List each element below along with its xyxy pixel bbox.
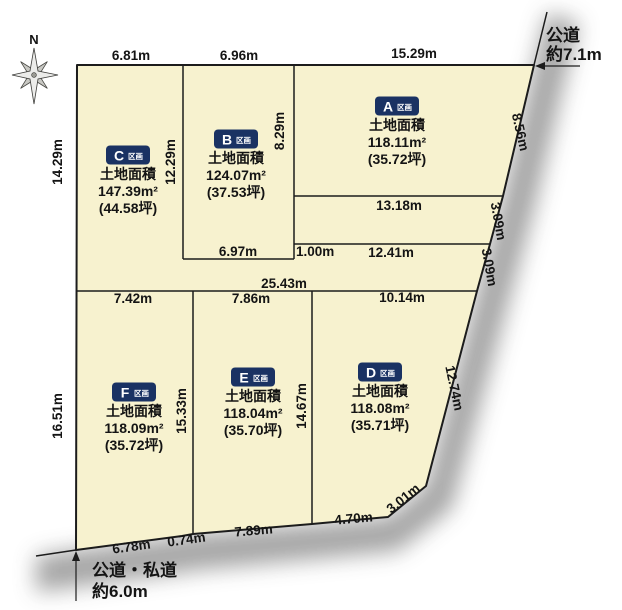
dim-e-top: 7.86m bbox=[232, 291, 270, 306]
road-top-label-2: 約7.1m bbox=[546, 44, 602, 64]
road-bottom-label-2: 約6.0m bbox=[92, 581, 148, 601]
plot-a-badge-sub: 区画 bbox=[397, 103, 412, 112]
plot-e-badge-sub: 区画 bbox=[253, 374, 268, 383]
plot-e-area-m2: 118.04m² bbox=[223, 405, 282, 421]
plot-b-area-tsubo: (37.53坪) bbox=[207, 184, 265, 200]
road-top-label-1: 公道 bbox=[546, 25, 580, 45]
plot-d-badge-sub: 区画 bbox=[380, 369, 395, 378]
site-plan-page: N 公道 約7.1m 公道・私道 約6.0m 6.81m 6.96m 15.29… bbox=[0, 0, 622, 610]
plot-b-area-m2: 124.07m² bbox=[206, 167, 266, 183]
plot-b: B 区画 土地面積 124.07m² (37.53坪) bbox=[206, 130, 266, 201]
plot-d-area-title: 土地面積 bbox=[352, 383, 409, 399]
parcel-outline bbox=[76, 65, 534, 550]
dim-left-upper: 14.29m bbox=[50, 139, 65, 185]
dim-b-bottom: 6.97m bbox=[219, 244, 257, 259]
dim-a-bottom: 13.18m bbox=[376, 198, 422, 213]
plot-f-badge-letter: F bbox=[121, 385, 130, 401]
plot-c-badge-sub: 区画 bbox=[128, 152, 143, 161]
plot-f: F 区画 土地面積 118.09m² (35.72坪) bbox=[104, 383, 163, 454]
plot-b-badge-letter: B bbox=[222, 132, 232, 148]
dim-step: 1.00m bbox=[296, 244, 334, 259]
plot-e-area-tsubo: (35.70坪) bbox=[224, 422, 282, 438]
site-plan-svg: N 公道 約7.1m 公道・私道 約6.0m 6.81m 6.96m 15.29… bbox=[0, 0, 622, 610]
plot-e-badge-letter: E bbox=[239, 370, 248, 386]
dim-top-b: 6.96m bbox=[220, 48, 258, 63]
plot-c-area-tsubo: (44.58坪) bbox=[99, 200, 157, 216]
plot-f-area-title: 土地面積 bbox=[106, 403, 163, 419]
compass: N bbox=[12, 32, 58, 104]
plot-d: D 区画 土地面積 118.08m² (35.71坪) bbox=[350, 363, 409, 434]
dim-mid-total: 25.43m bbox=[261, 276, 307, 291]
dim-top-c: 6.81m bbox=[112, 48, 150, 63]
dim-d-top: 10.14m bbox=[379, 290, 425, 305]
plot-f-area-m2: 118.09m² bbox=[104, 420, 163, 436]
plot-c-area-title: 土地面積 bbox=[100, 166, 157, 182]
north-label: N bbox=[29, 32, 38, 47]
plot-e-area-title: 土地面積 bbox=[225, 388, 282, 404]
plot-d-badge-letter: D bbox=[366, 365, 376, 381]
dim-divider-fe: 15.33m bbox=[174, 388, 189, 434]
plot-f-badge-sub: 区画 bbox=[134, 389, 149, 398]
dim-left-lower: 16.51m bbox=[50, 393, 65, 439]
dim-f-top: 7.42m bbox=[114, 291, 152, 306]
plot-d-area-m2: 118.08m² bbox=[350, 400, 409, 416]
plot-a-area-title: 土地面積 bbox=[369, 117, 426, 133]
plot-e: E 区画 土地面積 118.04m² (35.70坪) bbox=[223, 368, 282, 439]
plot-a-area-m2: 118.11m² bbox=[368, 134, 427, 150]
plot-f-area-tsubo: (35.72坪) bbox=[105, 437, 163, 453]
dim-1241: 12.41m bbox=[368, 245, 414, 260]
plot-a-area-tsubo: (35.72坪) bbox=[368, 151, 426, 167]
plot-b-area-title: 土地面積 bbox=[208, 150, 265, 166]
road-bottom-label-1: 公道・私道 bbox=[92, 560, 177, 580]
plot-c-area-m2: 147.39m² bbox=[98, 183, 158, 199]
plot-c: C 区画 土地面積 147.39m² (44.58坪) bbox=[98, 146, 158, 217]
plot-a: A 区画 土地面積 118.11m² (35.72坪) bbox=[368, 97, 427, 168]
plot-c-badge-letter: C bbox=[114, 148, 124, 164]
dim-top-a: 15.29m bbox=[391, 46, 437, 61]
dim-divider-ed: 14.67m bbox=[294, 383, 309, 429]
plot-a-badge-letter: A bbox=[383, 99, 393, 115]
plot-b-badge-sub: 区画 bbox=[236, 136, 251, 145]
dim-divider-ba: 8.29m bbox=[272, 112, 287, 150]
dim-divider-cb: 12.29m bbox=[163, 139, 178, 185]
compass-hub bbox=[32, 73, 37, 78]
plot-d-area-tsubo: (35.71坪) bbox=[351, 417, 409, 433]
